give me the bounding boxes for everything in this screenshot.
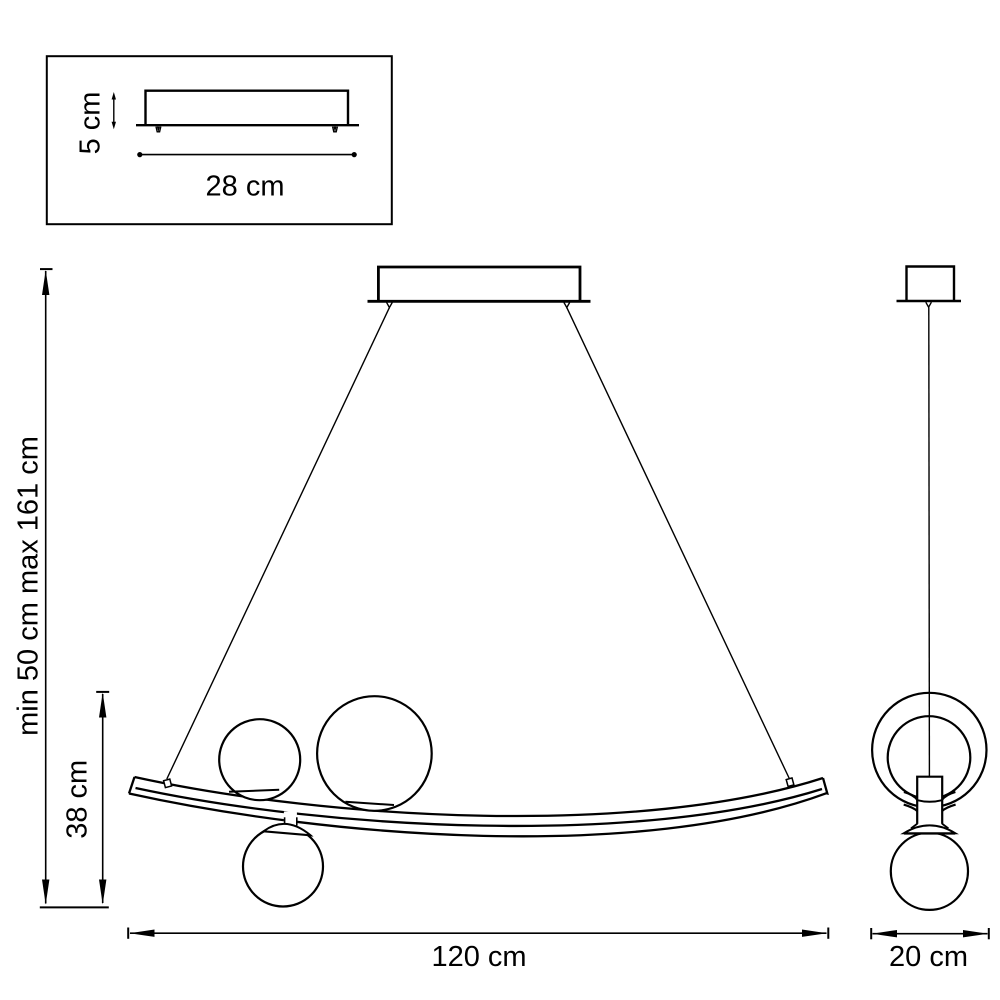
svg-text:min 50 cm max 161 cm: min 50 cm max 161 cm	[13, 436, 45, 736]
svg-text:5 cm: 5 cm	[75, 92, 107, 155]
svg-text:20 cm: 20 cm	[889, 941, 968, 973]
svg-text:28 cm: 28 cm	[206, 171, 285, 203]
svg-text:120 cm: 120 cm	[431, 941, 526, 973]
svg-text:38 cm: 38 cm	[62, 760, 94, 839]
